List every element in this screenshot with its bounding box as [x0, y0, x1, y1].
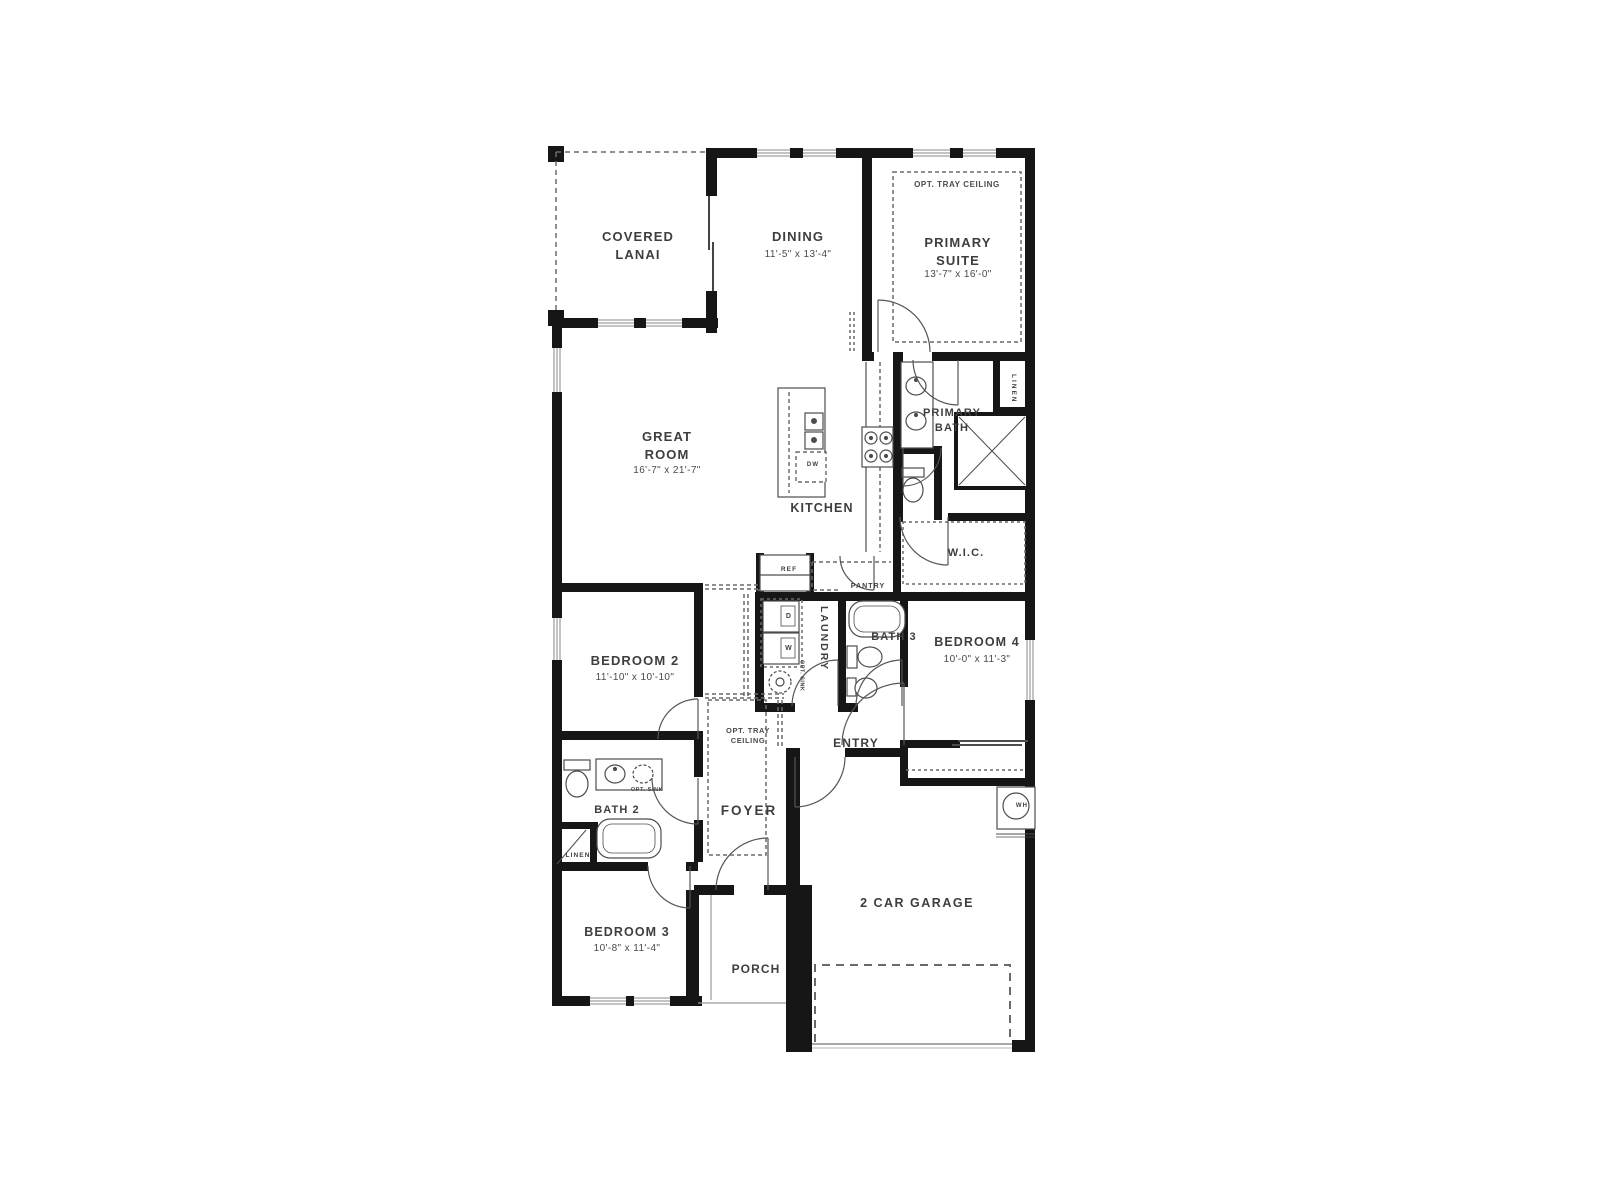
garage-door	[812, 1040, 1012, 1052]
window	[552, 618, 562, 660]
window	[963, 148, 996, 158]
window	[590, 996, 626, 1006]
window	[598, 318, 634, 328]
bath3-sink	[847, 678, 877, 698]
room-label-laundry: LAUNDRY	[817, 606, 831, 671]
room-label-porch: PORCH	[732, 961, 781, 977]
garage-apron-outline	[815, 965, 1010, 1042]
option-label-opt-sink-bath2: OPT. SINK	[631, 787, 663, 794]
water-heater	[996, 787, 1035, 837]
room-dims-dining: 11'-5" x 13'-4"	[765, 248, 832, 262]
door-garage-entry	[795, 757, 845, 807]
room-dims-bedroom-4: 10'-0" x 11'-3"	[944, 653, 1011, 667]
room-label-bedroom-3: BEDROOM 3	[584, 924, 670, 941]
room-dims-bedroom-2: 11'-10" x 10'-10"	[596, 671, 675, 685]
window	[803, 148, 836, 158]
fixture-label-pantry: PANTRY	[851, 582, 886, 591]
room-label-entry: ENTRY	[833, 735, 879, 751]
door-wic	[900, 517, 948, 565]
room-label-primary-bath: PRIMARY BATH	[912, 406, 992, 436]
room-label-bedroom-4: BEDROOM 4	[934, 634, 1020, 651]
window	[634, 996, 670, 1006]
floor-plan: COVERED LANAI DINING 11'-5" x 13'-4" OPT…	[0, 0, 1600, 1200]
bath3-toilet	[847, 646, 882, 668]
room-label-wic: W.I.C.	[948, 546, 985, 561]
sliding-door	[706, 196, 717, 291]
fixture-label-dw: DW	[807, 461, 819, 469]
cooktop	[862, 427, 893, 467]
floor-plan-drawing	[0, 0, 1600, 1200]
window	[913, 148, 950, 158]
kitchen-counter	[862, 362, 893, 552]
laundry-opt-sink	[769, 671, 791, 693]
window	[646, 318, 682, 328]
door-front	[716, 838, 768, 890]
porch-edge	[698, 895, 786, 1003]
window	[757, 148, 790, 158]
fixture-label-wh: WH	[1016, 802, 1028, 810]
window	[552, 348, 562, 392]
room-label-covered-lanai: COVERED LANAI	[588, 228, 688, 263]
option-label-tray-ceiling-suite: OPT. TRAY CEILING	[914, 180, 1000, 191]
tray-ceiling-outline	[708, 700, 766, 855]
fixture-label-washer: W	[785, 644, 793, 653]
optional-sink	[633, 765, 653, 783]
room-dims-bedroom-3: 10'-8" x 11'-4"	[594, 942, 661, 956]
bath2-tub	[597, 819, 661, 858]
option-label-tray-ceiling-foyer: OPT. TRAY CEILING	[708, 726, 788, 746]
room-label-dining: DINING	[772, 228, 824, 246]
closet-label-linen-primary: LINEN	[1008, 374, 1017, 404]
room-label-garage: 2 CAR GARAGE	[860, 895, 974, 912]
door-primary-suite	[878, 300, 930, 352]
option-label-opt-sink-laundry: OPT. SINK	[797, 660, 804, 691]
fixture-label-ref: REF	[781, 566, 797, 575]
room-label-bedroom-2: BEDROOM 2	[591, 652, 680, 670]
room-dims-primary-suite: 13'-7" x 16'-0"	[924, 268, 992, 282]
room-label-kitchen: KITCHEN	[790, 500, 853, 517]
room-dims-great-room: 16'-7" x 21'-7"	[633, 464, 701, 478]
dryer	[763, 601, 799, 632]
window	[1025, 640, 1035, 700]
closet-slider	[952, 741, 1028, 745]
door-bedroom3	[648, 866, 690, 908]
closet-label-linen-bath2: LINEN	[566, 852, 591, 861]
kitchen-island	[778, 388, 826, 497]
bath2-toilet	[564, 760, 590, 797]
room-label-primary-suite: PRIMARY SUITE	[913, 234, 1003, 269]
fixture-label-dryer: D	[786, 612, 792, 621]
room-label-bath-2: BATH 2	[594, 803, 640, 818]
room-label-great-room: GREAT ROOM	[627, 428, 707, 463]
washer	[763, 633, 799, 664]
room-label-bath-3: BATH 3	[870, 630, 918, 645]
room-label-foyer: FOYER	[721, 802, 778, 820]
